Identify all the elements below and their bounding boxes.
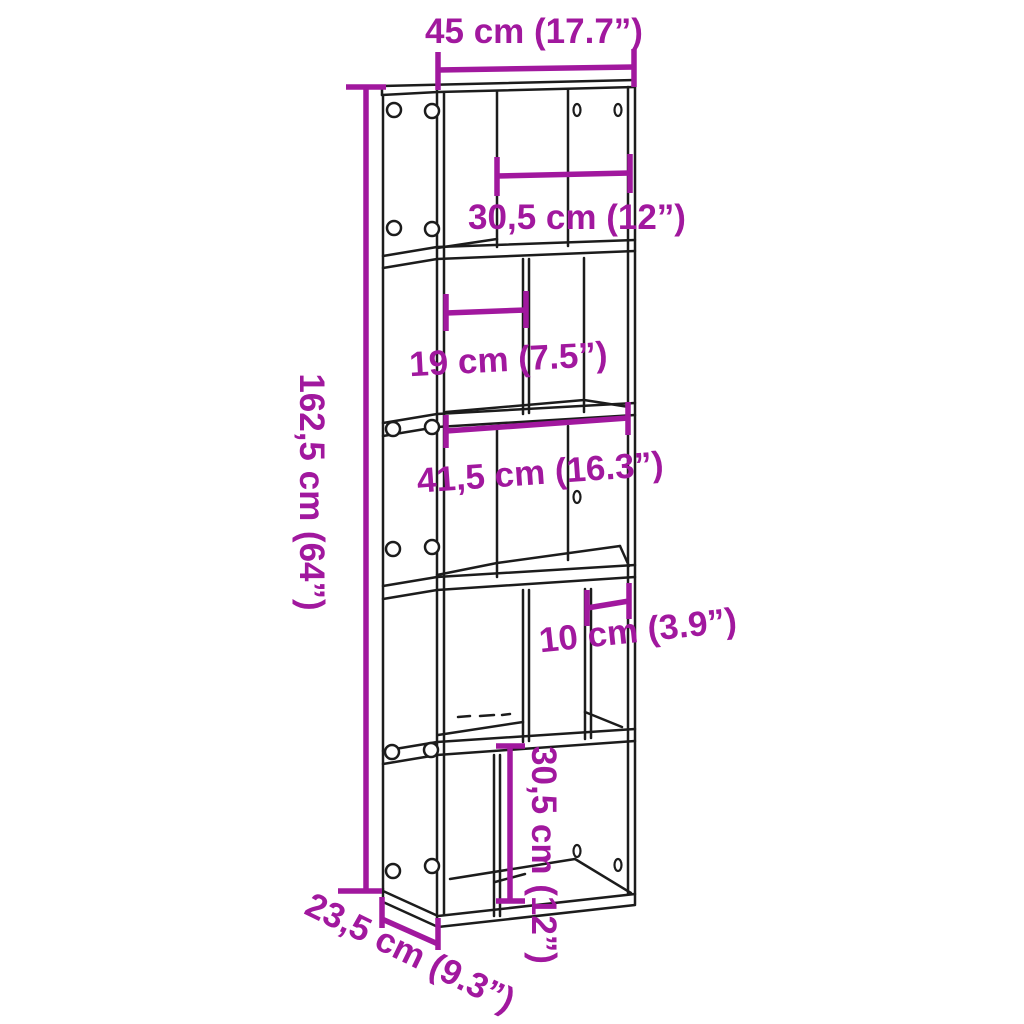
- dimension-bottom-compartment-height-label: 30,5 cm (12”): [524, 746, 563, 964]
- tier-4-dividers: [438, 589, 622, 742]
- dimension-fourth-compartment-width-label: 10 cm (3.9”): [537, 601, 738, 661]
- dimension-second-compartment-width: 19 cm (7.5”): [408, 291, 608, 384]
- dimension-middle-inner-width: 41,5 cm (16.3”): [416, 402, 665, 501]
- dimension-top-compartment-width-label: 30,5 cm (12”): [468, 198, 686, 237]
- dimension-total-width: 45 cm (17.7”): [425, 12, 643, 90]
- dimension-total-height-label: 162,5 cm (64”): [292, 373, 331, 610]
- shelf-bands: [383, 240, 635, 764]
- dimension-top-compartment-width: 30,5 cm (12”): [468, 154, 686, 237]
- dimension-fourth-compartment-width: 10 cm (3.9”): [537, 583, 738, 660]
- diagram-canvas: 45 cm (17.7”) 30,5 cm (12”) 19 cm (7.5”)…: [0, 0, 1024, 1024]
- dimension-second-compartment-width-label: 19 cm (7.5”): [408, 335, 608, 384]
- top-panel: [382, 80, 635, 95]
- dimension-bottom-compartment-height: 30,5 cm (12”): [496, 746, 563, 964]
- dimension-total-height: 162,5 cm (64”): [292, 87, 386, 891]
- dimension-total-width-label: 45 cm (17.7”): [425, 12, 643, 51]
- dimension-total-depth: 23,5 cm (9.3”): [299, 885, 521, 1020]
- dimension-total-depth-label: 23,5 cm (9.3”): [299, 885, 521, 1020]
- bookcase-dimension-diagram: 45 cm (17.7”) 30,5 cm (12”) 19 cm (7.5”)…: [0, 0, 1024, 1024]
